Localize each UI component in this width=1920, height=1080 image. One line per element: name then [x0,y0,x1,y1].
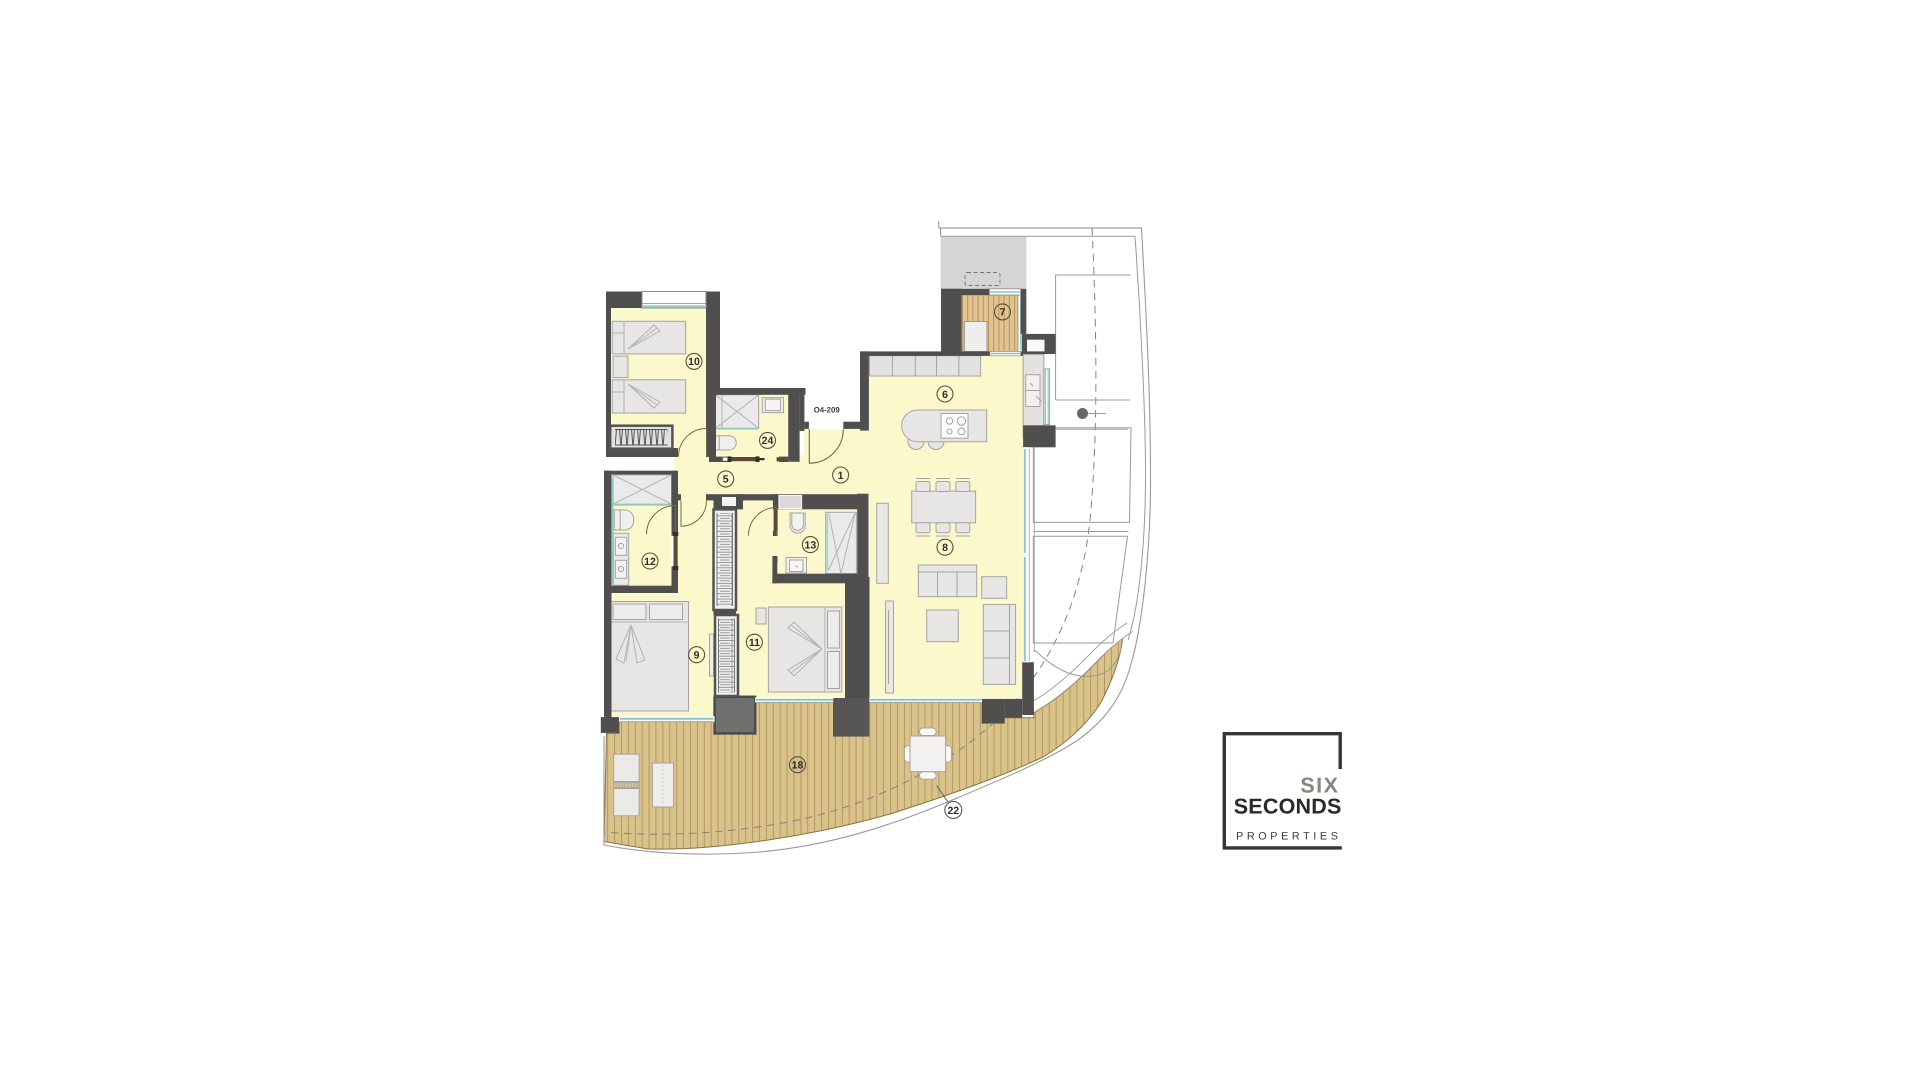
svg-text:22: 22 [947,805,959,817]
svg-text:6: 6 [942,389,948,401]
svg-text:5: 5 [723,474,729,486]
svg-text:O4-209: O4-209 [814,406,841,415]
svg-text:10: 10 [688,356,700,368]
svg-text:1: 1 [838,470,844,482]
svg-text:18: 18 [792,760,804,772]
svg-text:24: 24 [762,435,774,447]
svg-text:8: 8 [942,542,948,554]
svg-text:11: 11 [749,637,760,649]
svg-text:SECONDS: SECONDS [1234,795,1342,819]
svg-text:9: 9 [694,650,700,662]
svg-text:PROPERTIES: PROPERTIES [1236,831,1341,843]
svg-text:13: 13 [805,539,817,551]
svg-text:7: 7 [1000,307,1006,319]
svg-text:12: 12 [644,556,656,568]
